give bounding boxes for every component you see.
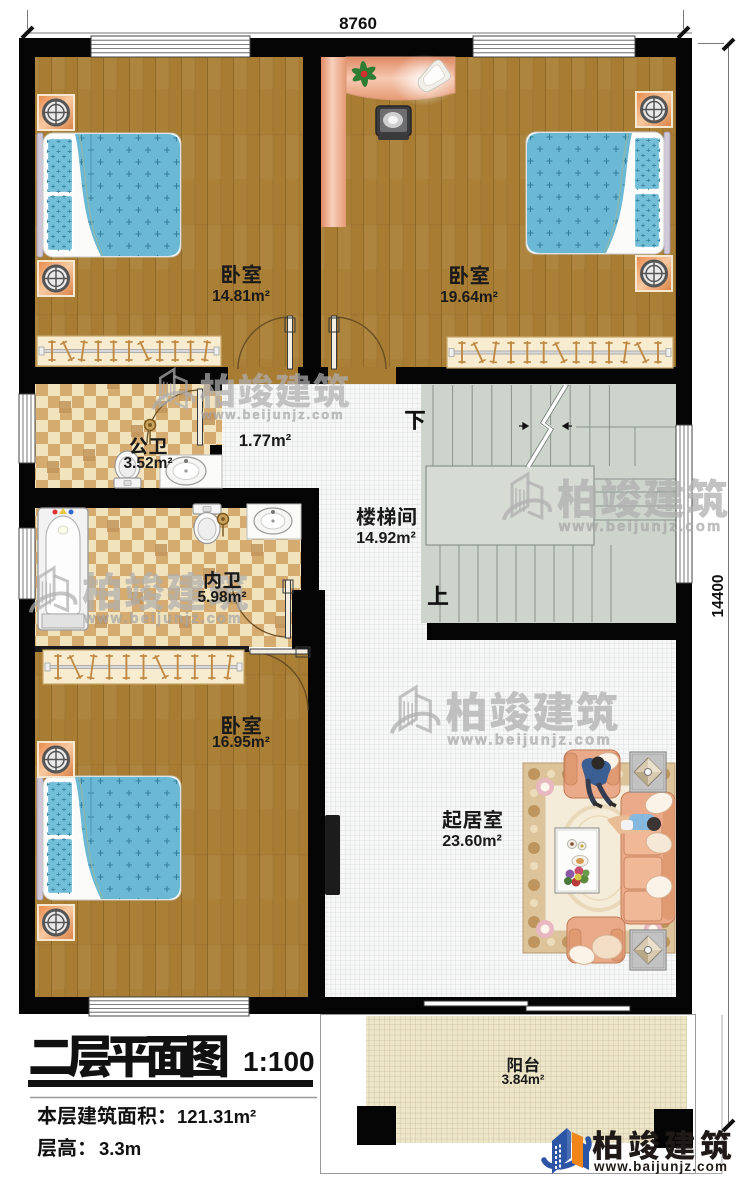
svg-text:www.beijunjz.com: www.beijunjz.com (558, 519, 723, 535)
svg-text:14400: 14400 (710, 574, 727, 617)
svg-text:www.beijunjz.com: www.beijunjz.com (83, 611, 243, 627)
svg-text:14.81m²: 14.81m² (212, 288, 270, 305)
svg-text:16.95m²: 16.95m² (212, 734, 270, 751)
svg-text:3.3m: 3.3m (99, 1138, 141, 1159)
svg-text:14.92m²: 14.92m² (356, 530, 416, 547)
svg-text:1:100: 1:100 (243, 1046, 315, 1077)
svg-text:121.31m²: 121.31m² (177, 1106, 256, 1127)
svg-text:3.84m²: 3.84m² (502, 1072, 545, 1087)
svg-text:19.64m²: 19.64m² (440, 289, 498, 306)
svg-text:5.98m²: 5.98m² (197, 589, 246, 606)
svg-text:23.60m²: 23.60m² (442, 833, 502, 850)
svg-text:3.52m²: 3.52m² (123, 455, 172, 472)
svg-text:www.beijunjz.com: www.beijunjz.com (200, 407, 344, 422)
svg-text:1.77m²: 1.77m² (239, 432, 292, 450)
svg-text:www.baijunjz.com: www.baijunjz.com (593, 1159, 728, 1174)
svg-text:www.beijunjz.com: www.beijunjz.com (446, 733, 612, 749)
svg-text:8760: 8760 (339, 14, 377, 33)
